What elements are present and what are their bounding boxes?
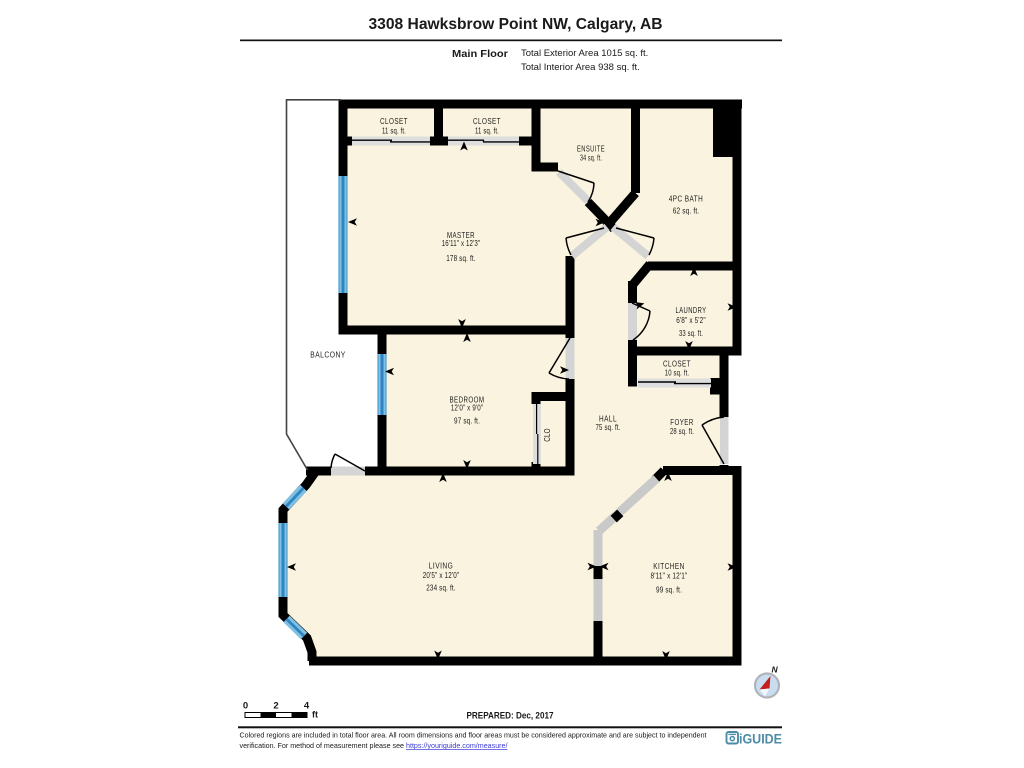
svg-text:6'8" x 5'2": 6'8" x 5'2" — [676, 316, 706, 325]
svg-text:Main Floor: Main Floor — [452, 48, 508, 60]
svg-text:11 sq. ft.: 11 sq. ft. — [475, 127, 499, 136]
svg-text:PREPARED: Dec, 2017: PREPARED: Dec, 2017 — [467, 711, 554, 721]
svg-text:HALL: HALL — [599, 414, 617, 424]
svg-text:CLOSET: CLOSET — [663, 359, 691, 369]
svg-text:KITCHEN: KITCHEN — [653, 561, 685, 571]
svg-text:75 sq. ft.: 75 sq. ft. — [596, 423, 621, 432]
svg-text:CLO: CLO — [543, 428, 552, 442]
svg-text:3308 Hawksbrow Point NW, Calga: 3308 Hawksbrow Point NW, Calgary, AB — [369, 16, 663, 33]
svg-text:4PC BATH: 4PC BATH — [669, 194, 704, 204]
svg-text:LIVING: LIVING — [429, 561, 454, 571]
svg-text:20'5" x 12'0": 20'5" x 12'0" — [423, 571, 460, 580]
svg-text:97 sq. ft.: 97 sq. ft. — [454, 417, 480, 426]
svg-text:N: N — [772, 665, 779, 675]
svg-text:ft: ft — [312, 710, 318, 720]
svg-text:verification. For method of me: verification. For method of measurement … — [240, 741, 508, 750]
svg-text:99 sq. ft.: 99 sq. ft. — [656, 586, 682, 595]
svg-text:234 sq. ft.: 234 sq. ft. — [426, 584, 456, 593]
svg-text:4: 4 — [304, 701, 310, 712]
svg-text:2: 2 — [273, 701, 278, 712]
svg-text:0: 0 — [243, 701, 248, 712]
svg-text:CLOSET: CLOSET — [380, 116, 408, 126]
svg-text:34 sq. ft.: 34 sq. ft. — [580, 154, 602, 163]
svg-text:33 sq. ft.: 33 sq. ft. — [679, 329, 703, 338]
svg-text:CLOSET: CLOSET — [473, 116, 501, 126]
svg-text:LAUNDRY: LAUNDRY — [676, 305, 707, 315]
svg-text:10 sq. ft.: 10 sq. ft. — [665, 369, 690, 378]
svg-text:Colored regions are included i: Colored regions are included in total fl… — [240, 731, 707, 740]
svg-text:12'0" x 9'0": 12'0" x 9'0" — [451, 404, 484, 413]
svg-text:iGUIDE: iGUIDE — [739, 731, 782, 747]
svg-text:ENSUITE: ENSUITE — [577, 144, 605, 154]
svg-text:FOYER: FOYER — [670, 417, 694, 427]
svg-text:11 sq. ft.: 11 sq. ft. — [382, 127, 406, 136]
svg-text:178 sq. ft.: 178 sq. ft. — [446, 254, 476, 263]
svg-text:Total Interior Area 938 sq. ft: Total Interior Area 938 sq. ft. — [521, 62, 640, 73]
svg-text:28 sq. ft.: 28 sq. ft. — [670, 427, 694, 436]
svg-text:8'11" x 12'1": 8'11" x 12'1" — [651, 572, 688, 581]
svg-text:Total Exterior Area 1015 sq. f: Total Exterior Area 1015 sq. ft. — [521, 48, 648, 59]
svg-text:16'11" x 12'3": 16'11" x 12'3" — [442, 239, 481, 248]
svg-text:BALCONY: BALCONY — [310, 350, 346, 360]
svg-text:62 sq. ft.: 62 sq. ft. — [673, 207, 700, 216]
